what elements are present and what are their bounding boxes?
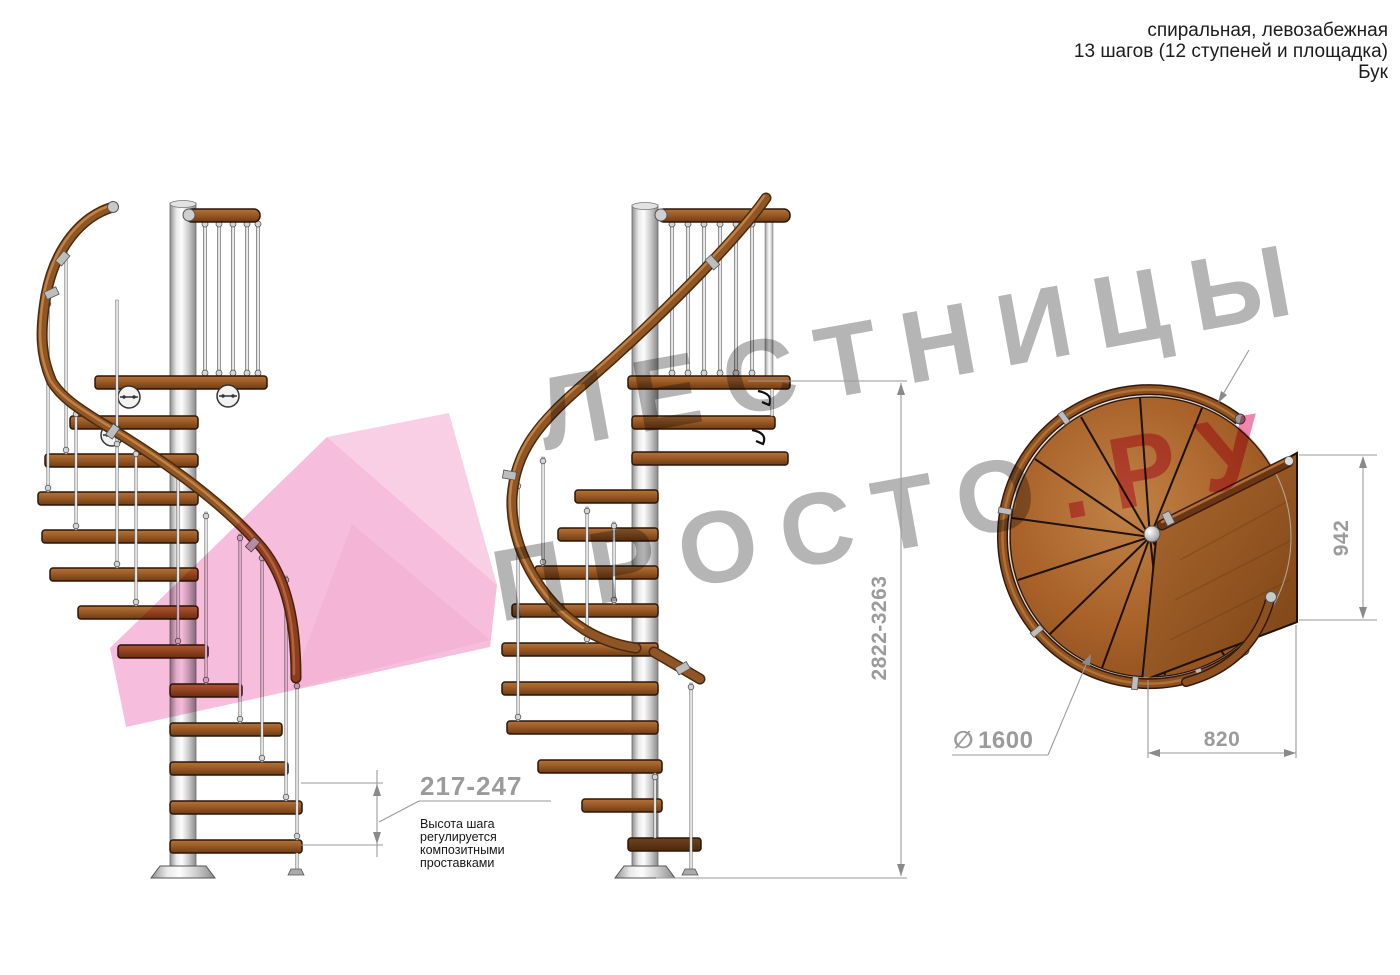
note-line: Высота шага [420, 817, 495, 831]
pole-base-flange [151, 866, 215, 878]
pole-top-cap [632, 203, 658, 210]
step [42, 530, 198, 543]
platform-height-value: 942 [1330, 520, 1353, 557]
platform-width-value: 820 [1204, 728, 1241, 751]
dimension-step-height: 217-247 Высота шага регулируется компози… [301, 770, 551, 870]
note-line: композитными [420, 843, 505, 857]
step-height-value: 217-247 [420, 771, 522, 801]
top-handrail [658, 209, 790, 222]
diameter-value: 1600 [978, 727, 1033, 754]
step [170, 723, 282, 736]
step [632, 452, 788, 465]
pole-center [1144, 526, 1160, 542]
disk [118, 386, 140, 408]
handrail-top-cap [108, 202, 119, 213]
total-height-value: 2822-3263 [868, 576, 891, 681]
pole-top-cap [170, 201, 196, 208]
step [507, 721, 658, 734]
step [538, 760, 662, 773]
platform-step [95, 376, 267, 389]
diameter-label: ∅1600 [953, 727, 1033, 754]
pole-base-flange [615, 866, 675, 878]
diameter-symbol: ∅ [953, 727, 974, 754]
step [582, 799, 662, 812]
step [170, 801, 302, 814]
top-handrail [186, 209, 260, 222]
rail-end-cap [655, 209, 667, 221]
rail-end-cap [1266, 592, 1277, 603]
step [50, 568, 198, 581]
step [502, 682, 658, 695]
step-height-note: Высота шага регулируется композитными пр… [420, 817, 505, 870]
note-line: проставками [420, 856, 494, 870]
dimension-platform-height: 942 [1299, 455, 1377, 620]
disk [217, 385, 239, 407]
technical-drawing-canvas: ЛЕСТНИЦЫ ПРОСТО.РУ 2822-3263 217-247 Выс… [0, 0, 1400, 975]
dimension-diameter: ∅1600 [952, 654, 1091, 755]
note-line: регулируется [420, 830, 497, 844]
rail-end-cap [183, 209, 195, 221]
step [170, 840, 302, 853]
step [170, 762, 288, 775]
drawing-page: спиральная, левозабежная 13 шагов (12 ст… [0, 0, 1400, 975]
